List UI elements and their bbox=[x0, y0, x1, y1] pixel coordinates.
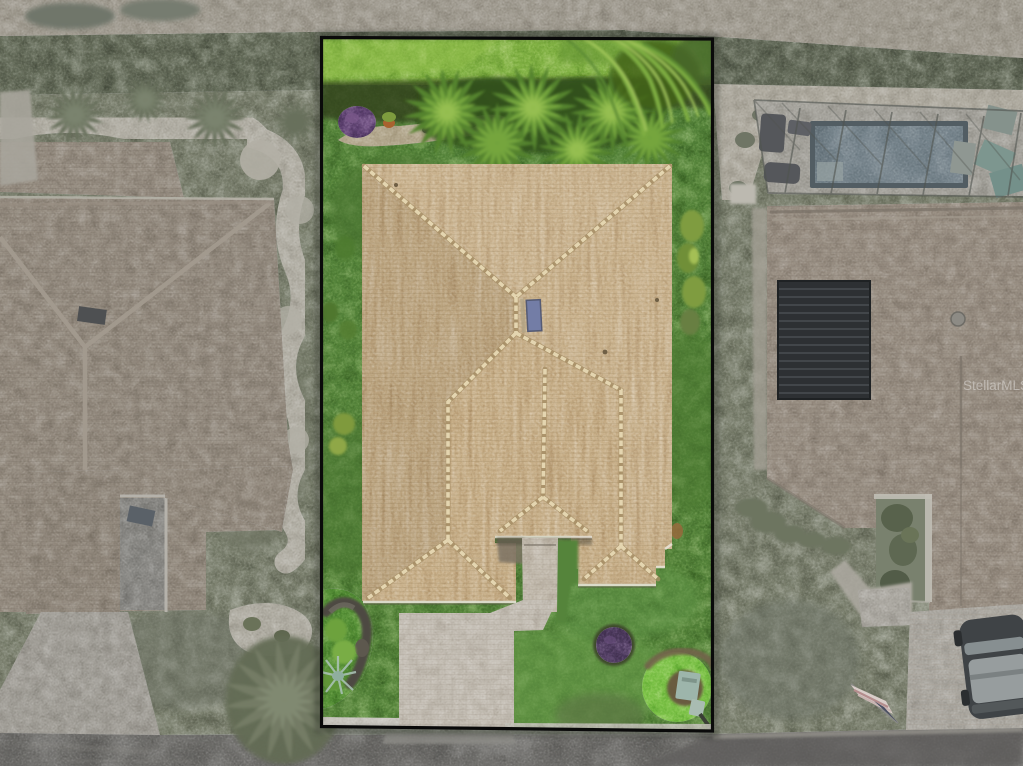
svg-text:StellarMLS: StellarMLS bbox=[963, 378, 1023, 393]
